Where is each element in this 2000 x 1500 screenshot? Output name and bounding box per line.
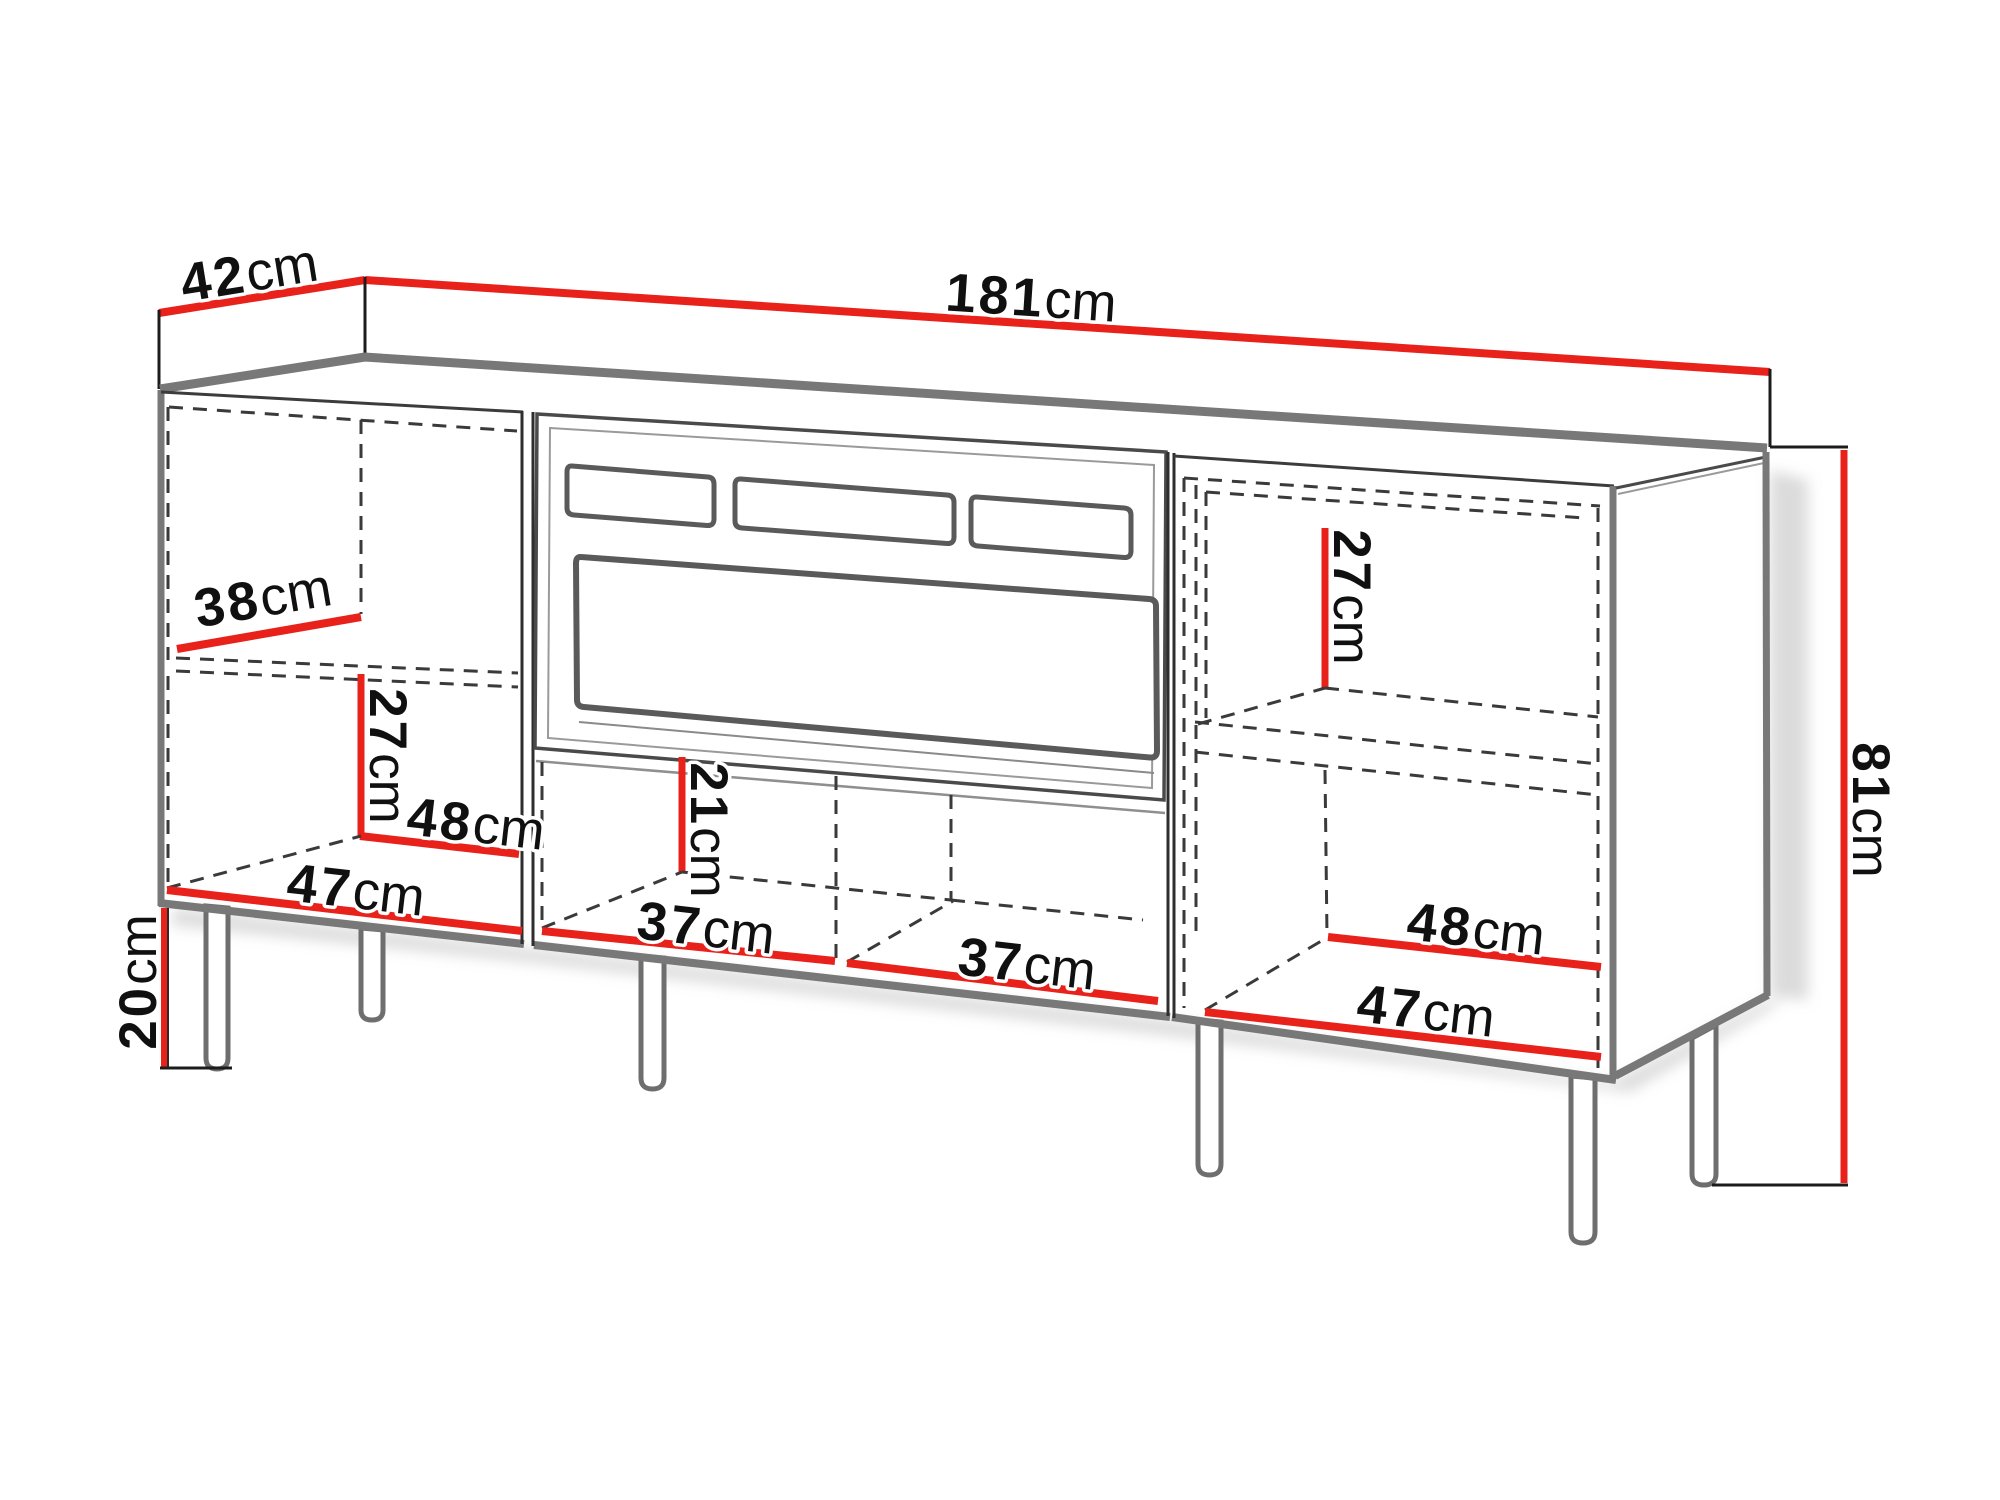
svg-text:20cm: 20cm bbox=[109, 914, 168, 1050]
svg-text:21cm: 21cm bbox=[679, 762, 738, 898]
svg-text:81cm: 81cm bbox=[1841, 742, 1900, 878]
svg-text:27cm: 27cm bbox=[1322, 529, 1381, 665]
svg-text:48cm: 48cm bbox=[404, 786, 548, 861]
svg-text:48cm: 48cm bbox=[1404, 891, 1548, 966]
svg-text:42cm: 42cm bbox=[176, 233, 322, 314]
svg-text:47cm: 47cm bbox=[1354, 973, 1498, 1048]
svg-text:37cm: 37cm bbox=[955, 926, 1099, 1001]
svg-text:37cm: 37cm bbox=[634, 890, 778, 965]
svg-text:181cm: 181cm bbox=[944, 262, 1119, 333]
